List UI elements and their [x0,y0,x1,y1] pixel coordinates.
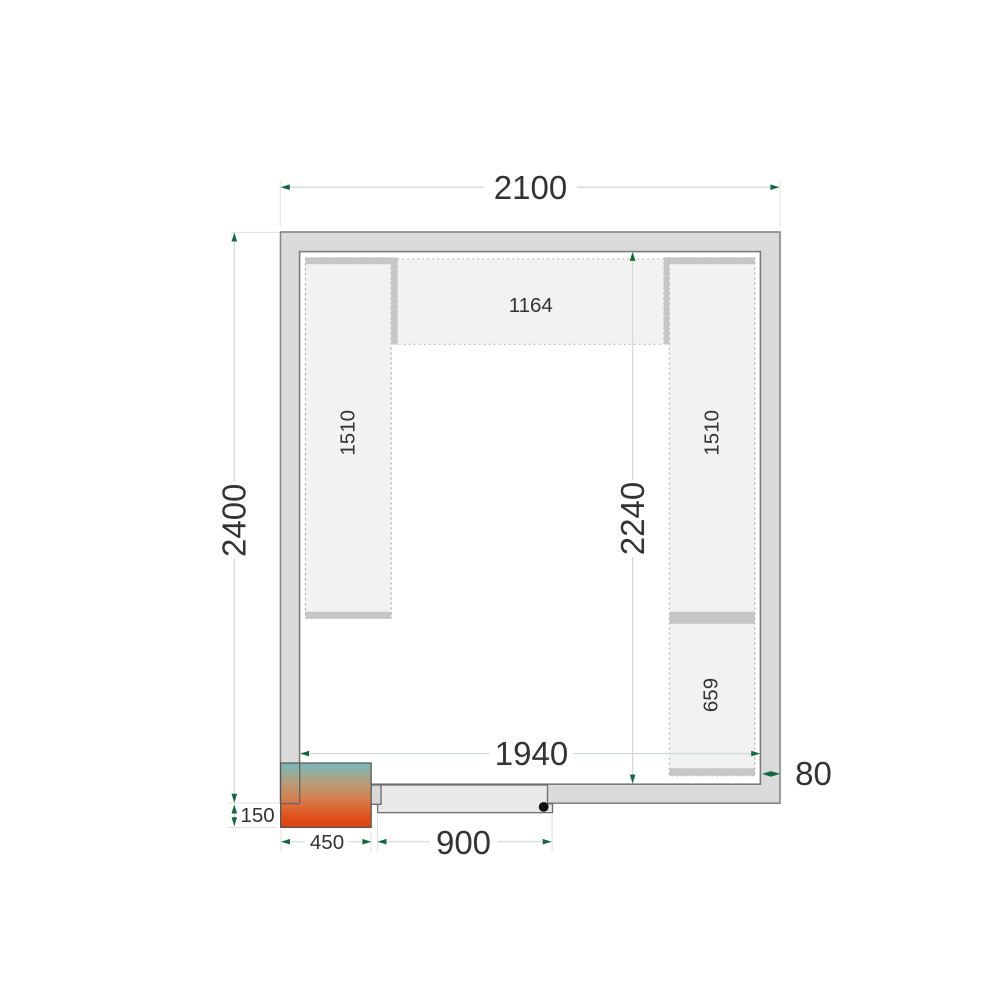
svg-text:2400: 2400 [216,484,253,557]
svg-text:2100: 2100 [494,169,567,206]
svg-text:1164: 1164 [509,294,553,317]
svg-text:659: 659 [699,678,722,712]
svg-text:1510: 1510 [701,410,724,456]
svg-text:450: 450 [310,831,344,854]
svg-text:1940: 1940 [495,735,568,772]
svg-text:1510: 1510 [337,410,360,456]
svg-text:2240: 2240 [614,482,651,555]
svg-text:80: 80 [795,755,832,792]
svg-text:150: 150 [241,804,275,827]
svg-text:900: 900 [436,824,491,861]
